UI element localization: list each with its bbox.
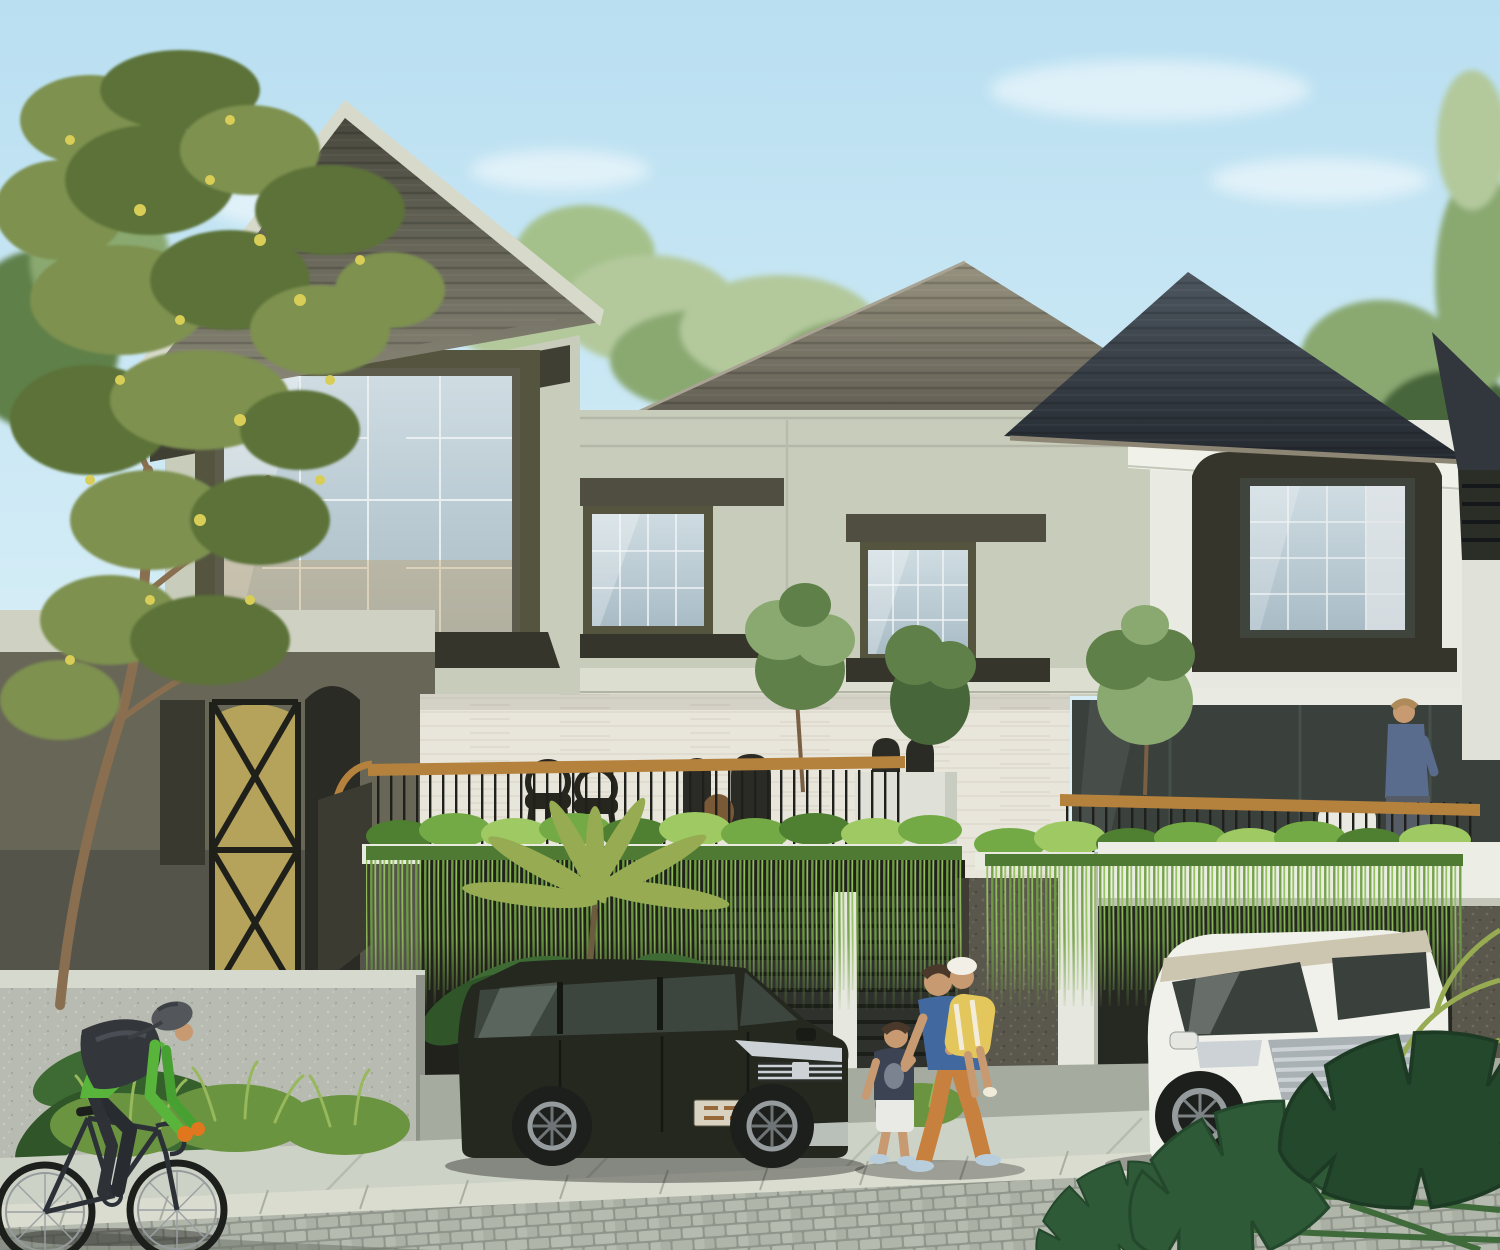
architectural-render xyxy=(0,0,1500,1250)
suv-wheel xyxy=(730,1084,814,1168)
suv-mirror xyxy=(796,1028,816,1041)
side-window xyxy=(160,700,205,865)
render-stage xyxy=(0,0,1500,1250)
suv-logo xyxy=(792,1062,809,1079)
van-headlight xyxy=(1196,1040,1262,1068)
van-mirror xyxy=(1170,1032,1198,1049)
suv-wheel xyxy=(512,1086,592,1166)
van-side-glass xyxy=(1332,952,1430,1020)
